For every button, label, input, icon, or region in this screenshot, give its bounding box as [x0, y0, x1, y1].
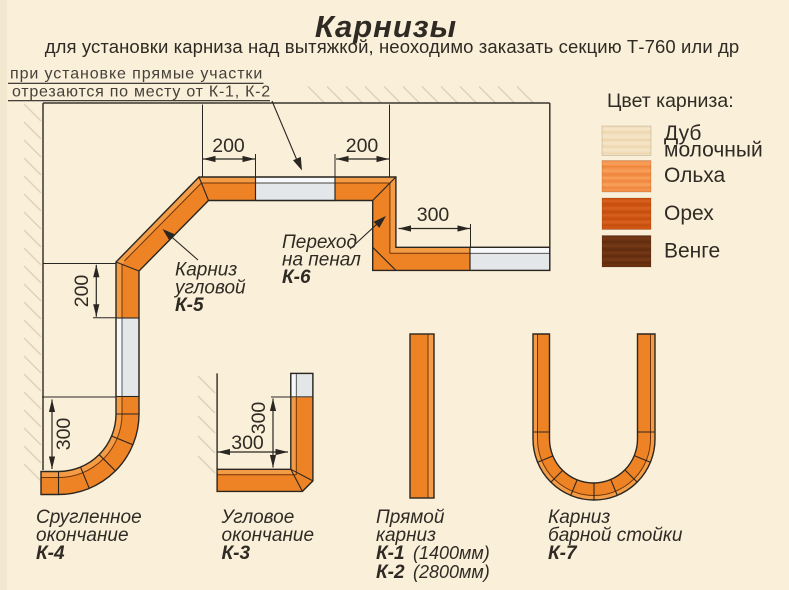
- svg-text:К-1: К-1: [376, 543, 405, 564]
- svg-text:300: 300: [53, 418, 75, 451]
- svg-text:отрезаются по месту от К-1,: отрезаются по месту от К-1, К-2: [12, 84, 271, 101]
- svg-text:(2800мм): (2800мм): [413, 562, 490, 582]
- svg-text:для установки карниза над вытя: для установки карниза над вытяжкой, неох…: [45, 36, 740, 57]
- svg-text:200: 200: [71, 275, 93, 308]
- svg-text:Цвет карниза:: Цвет карниза:: [607, 90, 734, 112]
- svg-text:300: 300: [231, 432, 264, 454]
- svg-text:К-4: К-4: [36, 543, 65, 564]
- svg-text:молочный: молочный: [664, 139, 763, 162]
- svg-text:Венге: Венге: [664, 240, 720, 263]
- svg-text:К-3: К-3: [222, 543, 251, 564]
- svg-text:К-2: К-2: [376, 562, 405, 583]
- svg-text:Орех: Орех: [664, 202, 714, 225]
- svg-text:200: 200: [346, 135, 379, 157]
- svg-text:при установке прямые участки: при установке прямые участки: [10, 66, 263, 83]
- svg-text:Ольха: Ольха: [664, 164, 726, 187]
- svg-text:К-5: К-5: [175, 295, 204, 316]
- svg-text:К-6: К-6: [282, 267, 311, 288]
- svg-text:300: 300: [248, 402, 270, 435]
- svg-text:200: 200: [212, 135, 245, 157]
- svg-text:300: 300: [417, 204, 450, 226]
- svg-text:(1400мм): (1400мм): [413, 543, 490, 563]
- svg-text:К-7: К-7: [548, 543, 578, 564]
